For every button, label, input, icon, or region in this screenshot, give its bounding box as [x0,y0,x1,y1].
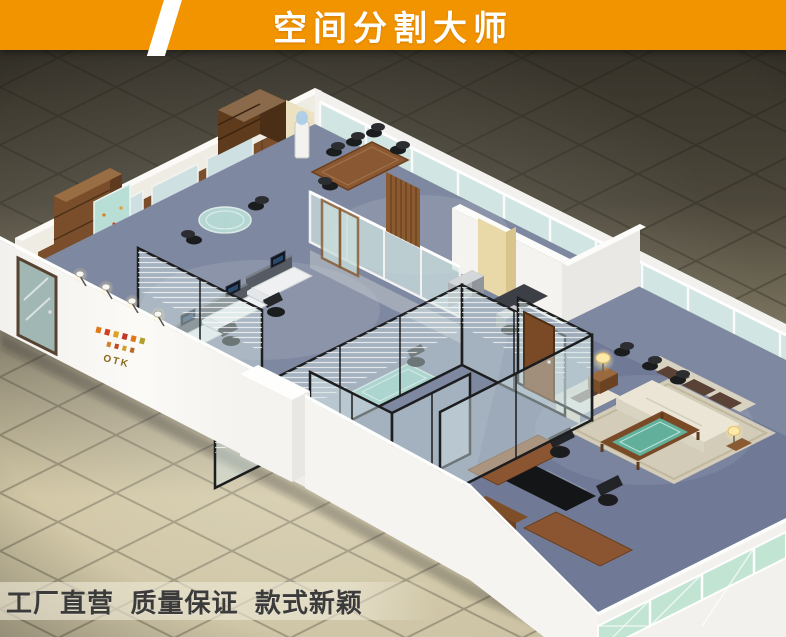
tagline-strip: 工厂直营 质量保证 款式新颖 [0,582,436,620]
product-image: OTK 空间分割大师 工厂直营 质量保证 款式新颖 [0,0,786,637]
banner-title: 空间分割大师 [273,1,513,50]
tagline-text: 工厂直营 质量保证 款式新颖 [0,583,363,620]
water-dispenser [295,111,309,158]
banner: 空间分割大师 [0,0,786,50]
office-render: OTK [0,0,786,637]
banner-slash-decoration [147,0,183,56]
